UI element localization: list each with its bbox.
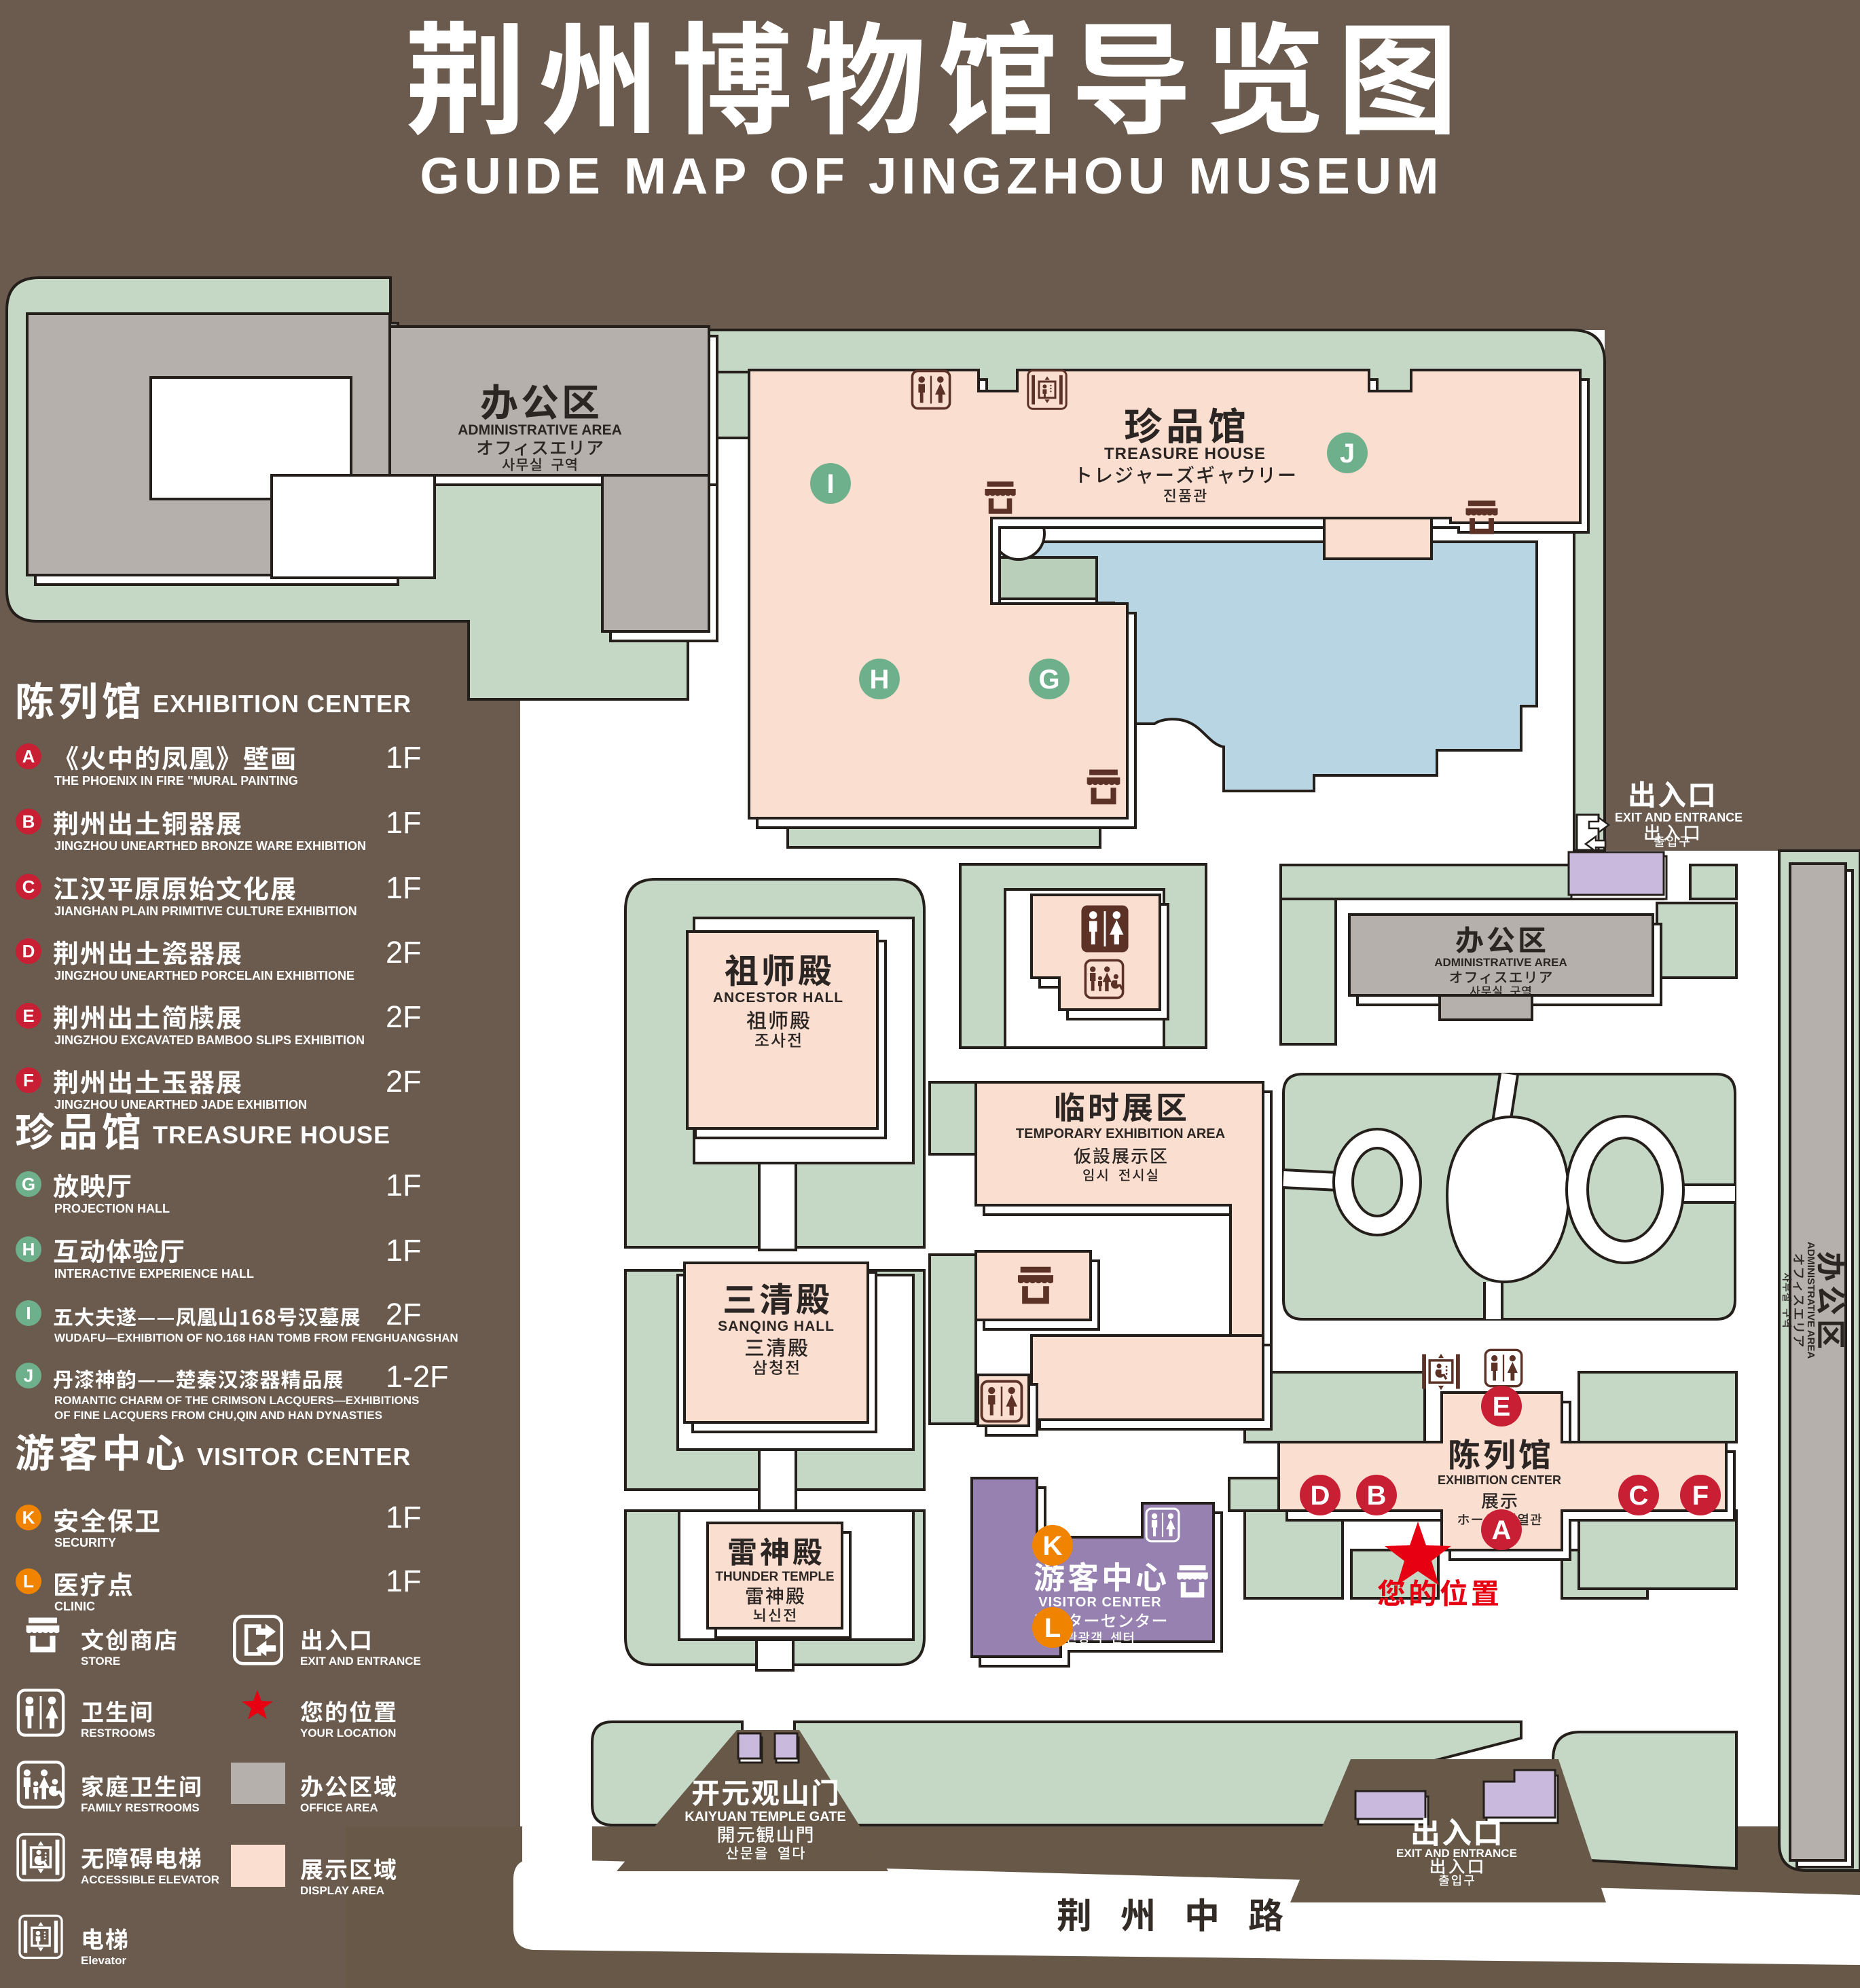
- svg-text:A: A: [22, 746, 35, 767]
- svg-text:B: B: [1367, 1481, 1387, 1511]
- svg-text:JINGZHOU EXCAVATED BAMBOO SLIP: JINGZHOU EXCAVATED BAMBOO SLIPS EXHIBITI…: [54, 1033, 365, 1047]
- svg-text:PROJECTION HALL: PROJECTION HALL: [54, 1202, 170, 1215]
- svg-text:YOUR LOCATION: YOUR LOCATION: [300, 1727, 396, 1739]
- svg-text:KAIYUAN TEMPLE GATE: KAIYUAN TEMPLE GATE: [685, 1809, 845, 1824]
- svg-text:TREASURE HOUSE: TREASURE HOUSE: [153, 1121, 390, 1149]
- svg-text:1F: 1F: [386, 870, 422, 905]
- svg-text:SANQING HALL: SANQING HALL: [718, 1319, 835, 1334]
- svg-text:TEMPORARY EXHIBITION AREA: TEMPORARY EXHIBITION AREA: [1016, 1126, 1225, 1141]
- svg-text:2F: 2F: [386, 1064, 422, 1099]
- svg-text:J: J: [1340, 439, 1355, 468]
- svg-text:H: H: [870, 665, 890, 695]
- svg-text:ADMINISTRATIVE AREA: ADMINISTRATIVE AREA: [458, 422, 622, 438]
- svg-text:H: H: [22, 1239, 35, 1259]
- svg-text:2F: 2F: [386, 1297, 422, 1331]
- svg-text:L: L: [1044, 1613, 1061, 1643]
- svg-text:JINGZHOU UNEARTHED PORCELAIN E: JINGZHOU UNEARTHED PORCELAIN EXHIBITIONE: [54, 969, 354, 982]
- svg-text:C: C: [22, 877, 35, 897]
- svg-text:TREASURE HOUSE: TREASURE HOUSE: [1104, 445, 1266, 463]
- svg-text:GUIDE MAP OF JINGZHOU MUSEUM: GUIDE MAP OF JINGZHOU MUSEUM: [420, 147, 1443, 204]
- svg-text:1F: 1F: [386, 1233, 422, 1268]
- svg-text:INTERACTIVE EXPERIENCE HALL: INTERACTIVE EXPERIENCE HALL: [54, 1267, 254, 1281]
- svg-text:DISPLAY AREA: DISPLAY AREA: [300, 1884, 384, 1897]
- svg-text:J: J: [24, 1365, 33, 1386]
- svg-text:EXIT AND ENTRANCE: EXIT AND ENTRANCE: [1615, 811, 1743, 824]
- svg-text:WUDAFU—EXHIBITION OF NO.168 HA: WUDAFU—EXHIBITION OF NO.168 HAN TOMB FRO…: [54, 1331, 458, 1344]
- svg-text:1F: 1F: [386, 1564, 422, 1598]
- svg-text:THE PHOENIX IN FIRE "MURAL PAI: THE PHOENIX IN FIRE "MURAL PAINTING: [54, 774, 298, 788]
- svg-text:ANCESTOR HALL: ANCESTOR HALL: [713, 990, 843, 1006]
- svg-text:STORE: STORE: [81, 1655, 120, 1668]
- svg-text:1F: 1F: [386, 1168, 422, 1202]
- svg-text:OF FINE LACQUERS FROM CHU,QIN: OF FINE LACQUERS FROM CHU,QIN AND HAN DY…: [54, 1409, 382, 1422]
- svg-text:D: D: [1311, 1481, 1330, 1511]
- svg-text:F: F: [1692, 1481, 1709, 1511]
- svg-text:Elevator: Elevator: [81, 1954, 126, 1967]
- svg-text:EXHIBITION CENTER: EXHIBITION CENTER: [153, 690, 412, 718]
- svg-text:F: F: [23, 1070, 34, 1090]
- svg-text:ACCESSIBLE ELEVATOR: ACCESSIBLE ELEVATOR: [81, 1873, 219, 1886]
- svg-text:K: K: [22, 1507, 35, 1528]
- svg-text:D: D: [22, 941, 35, 961]
- svg-text:EXIT AND ENTRANCE: EXIT AND ENTRANCE: [1396, 1847, 1517, 1860]
- svg-text:EXHIBITION CENTER: EXHIBITION CENTER: [1438, 1473, 1561, 1487]
- svg-text:I: I: [826, 469, 834, 499]
- svg-text:2F: 2F: [386, 935, 422, 970]
- svg-text:K: K: [1043, 1531, 1063, 1561]
- svg-text:1F: 1F: [386, 740, 422, 775]
- svg-text:E: E: [1493, 1392, 1511, 1422]
- svg-text:JINGZHOU UNEARTHED BRONZE WARE: JINGZHOU UNEARTHED BRONZE WARE EXHIBITIO…: [54, 839, 366, 853]
- svg-text:THUNDER TEMPLE: THUNDER TEMPLE: [715, 1570, 834, 1584]
- svg-text:ADMINISTRATIVE AREA: ADMINISTRATIVE AREA: [1434, 956, 1567, 969]
- svg-text:ADMINISTRATIVE AREA: ADMINISTRATIVE AREA: [1805, 1242, 1817, 1359]
- svg-text:RESTROOMS: RESTROOMS: [81, 1727, 156, 1739]
- svg-text:E: E: [22, 1006, 34, 1026]
- svg-text:L: L: [23, 1571, 34, 1591]
- svg-text:ROMANTIC CHARM OF THE CRIMSON: ROMANTIC CHARM OF THE CRIMSON LACQUERS—E…: [54, 1394, 419, 1407]
- svg-text:G: G: [1038, 665, 1059, 695]
- svg-text:A: A: [1492, 1515, 1512, 1545]
- svg-text:2F: 2F: [386, 999, 422, 1034]
- svg-text:JIANGHAN PLAIN PRIMITIVE CULTU: JIANGHAN PLAIN PRIMITIVE CULTURE EXHIBIT…: [54, 904, 357, 918]
- svg-text:JINGZHOU UNEARTHED JADE EXHIBI: JINGZHOU UNEARTHED JADE EXHIBITION: [54, 1098, 307, 1111]
- svg-text:FAMILY RESTROOMS: FAMILY RESTROOMS: [81, 1801, 200, 1814]
- svg-text:1F: 1F: [386, 1500, 422, 1534]
- svg-text:B: B: [22, 811, 35, 832]
- svg-text:1F: 1F: [386, 805, 422, 840]
- svg-text:OFFICE AREA: OFFICE AREA: [300, 1801, 378, 1814]
- svg-text:SECURITY: SECURITY: [54, 1536, 116, 1549]
- svg-text:C: C: [1629, 1481, 1649, 1511]
- svg-text:G: G: [22, 1174, 35, 1194]
- svg-text:I: I: [26, 1303, 31, 1323]
- svg-text:EXIT AND ENTRANCE: EXIT AND ENTRANCE: [300, 1655, 421, 1668]
- svg-text:CLINIC: CLINIC: [54, 1600, 95, 1613]
- svg-text:VISITOR CENTER: VISITOR CENTER: [1038, 1595, 1161, 1610]
- svg-text:1-2F: 1-2F: [386, 1359, 449, 1394]
- svg-text:VISITOR CENTER: VISITOR CENTER: [197, 1443, 411, 1471]
